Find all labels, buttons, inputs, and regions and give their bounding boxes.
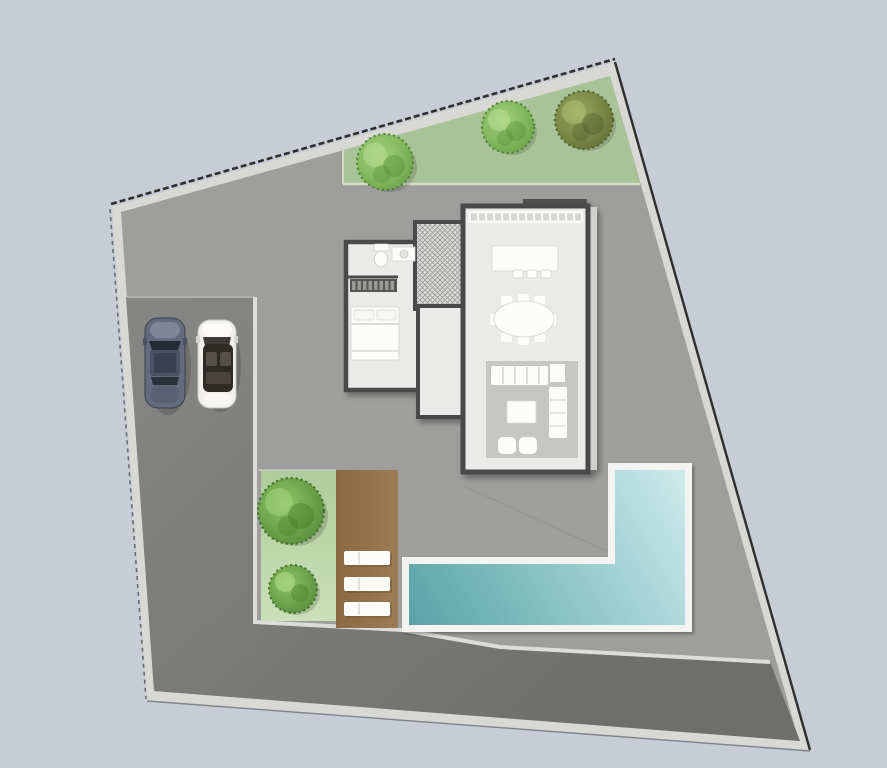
- sunroof: [154, 353, 176, 373]
- dining-table: [494, 301, 554, 337]
- living-room: [486, 361, 578, 458]
- bar-stool: [527, 270, 537, 278]
- car-trunk: [151, 386, 179, 403]
- side-table: [550, 364, 565, 382]
- car-hood: [150, 322, 180, 338]
- stairs-hatch: [417, 224, 461, 307]
- bar-stool: [513, 270, 523, 278]
- coffee-table: [507, 401, 536, 423]
- pouf: [498, 437, 516, 454]
- site-plan-page: [0, 0, 887, 768]
- sun-lounger: [344, 602, 392, 618]
- sun-lounger: [344, 577, 392, 593]
- car-seat: [206, 352, 217, 366]
- toilet: [374, 244, 389, 267]
- kitchen-island: [492, 246, 558, 271]
- open-cockpit: [203, 344, 233, 392]
- site-plan-canvas: [0, 0, 887, 768]
- car-dark-coupe: [143, 318, 191, 415]
- hallway: [418, 306, 463, 417]
- car-hood: [202, 323, 232, 337]
- windshield: [149, 341, 181, 350]
- side-mirror: [183, 338, 187, 345]
- rear-bench: [206, 372, 231, 384]
- sun-lounger: [344, 551, 392, 567]
- bathroom-vanity: [392, 247, 415, 261]
- wardrobe: [350, 279, 397, 292]
- side-mirror: [234, 336, 238, 343]
- sun-loungers: [344, 551, 392, 618]
- car-seat: [220, 352, 231, 366]
- pillow: [354, 310, 374, 320]
- kitchen-counter: [468, 211, 583, 223]
- bar-stool: [541, 270, 551, 278]
- side-mirror: [143, 338, 147, 345]
- car-white-convertible: [196, 320, 241, 412]
- pouf: [519, 437, 537, 454]
- rear-window: [151, 377, 179, 385]
- car-trunk: [204, 394, 232, 406]
- side-mirror: [196, 336, 200, 343]
- bed: [351, 307, 399, 360]
- pillow: [377, 310, 396, 320]
